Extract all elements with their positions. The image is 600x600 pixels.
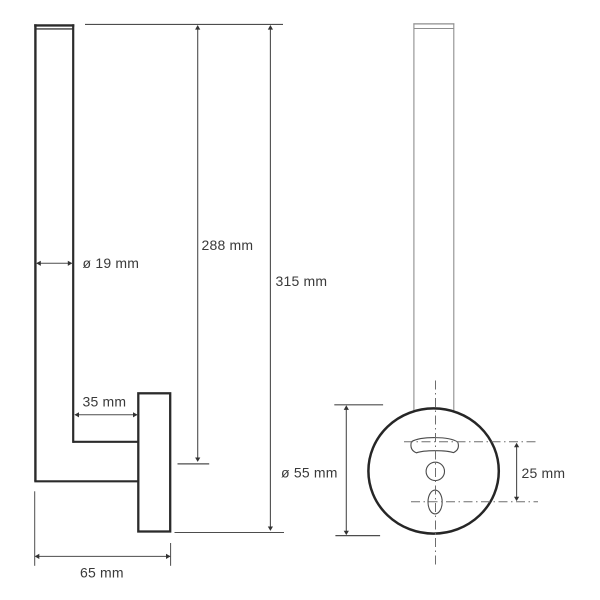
svg-text:288 mm: 288 mm [202,237,254,253]
svg-text:ø 19 mm: ø 19 mm [83,255,140,271]
svg-text:315 mm: 315 mm [276,273,328,289]
svg-text:25 mm: 25 mm [522,465,566,481]
svg-text:35 mm: 35 mm [83,394,127,410]
svg-text:65 mm: 65 mm [80,564,124,580]
svg-text:ø 55 mm: ø 55 mm [281,465,338,481]
